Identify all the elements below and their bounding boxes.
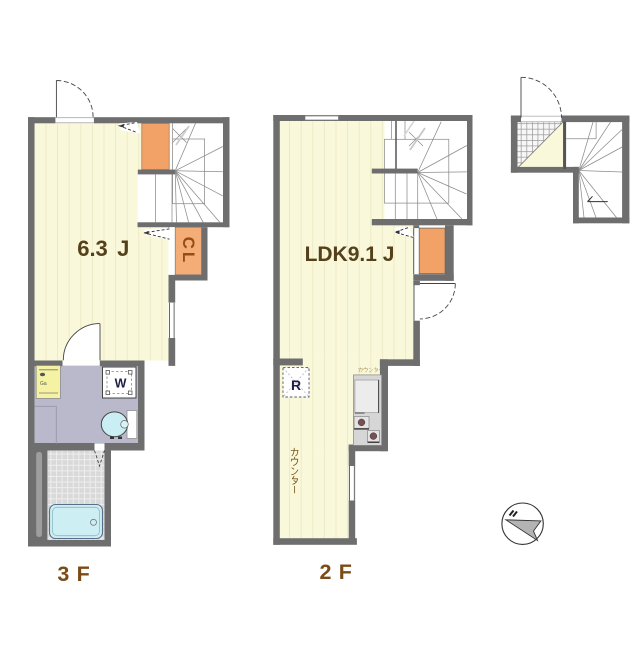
svg-text:LDK9.1 J: LDK9.1 J	[305, 243, 395, 266]
svg-text:F: F	[77, 562, 90, 586]
svg-text:6.3: 6.3	[77, 236, 108, 261]
svg-text:F: F	[339, 560, 352, 584]
svg-text:R: R	[291, 377, 301, 393]
svg-text:CL: CL	[179, 237, 198, 266]
svg-text:Ga: Ga	[40, 381, 47, 387]
svg-text:2: 2	[320, 560, 332, 584]
svg-text:3: 3	[57, 562, 69, 586]
svg-text:W: W	[115, 377, 127, 391]
svg-text:J: J	[117, 236, 129, 261]
